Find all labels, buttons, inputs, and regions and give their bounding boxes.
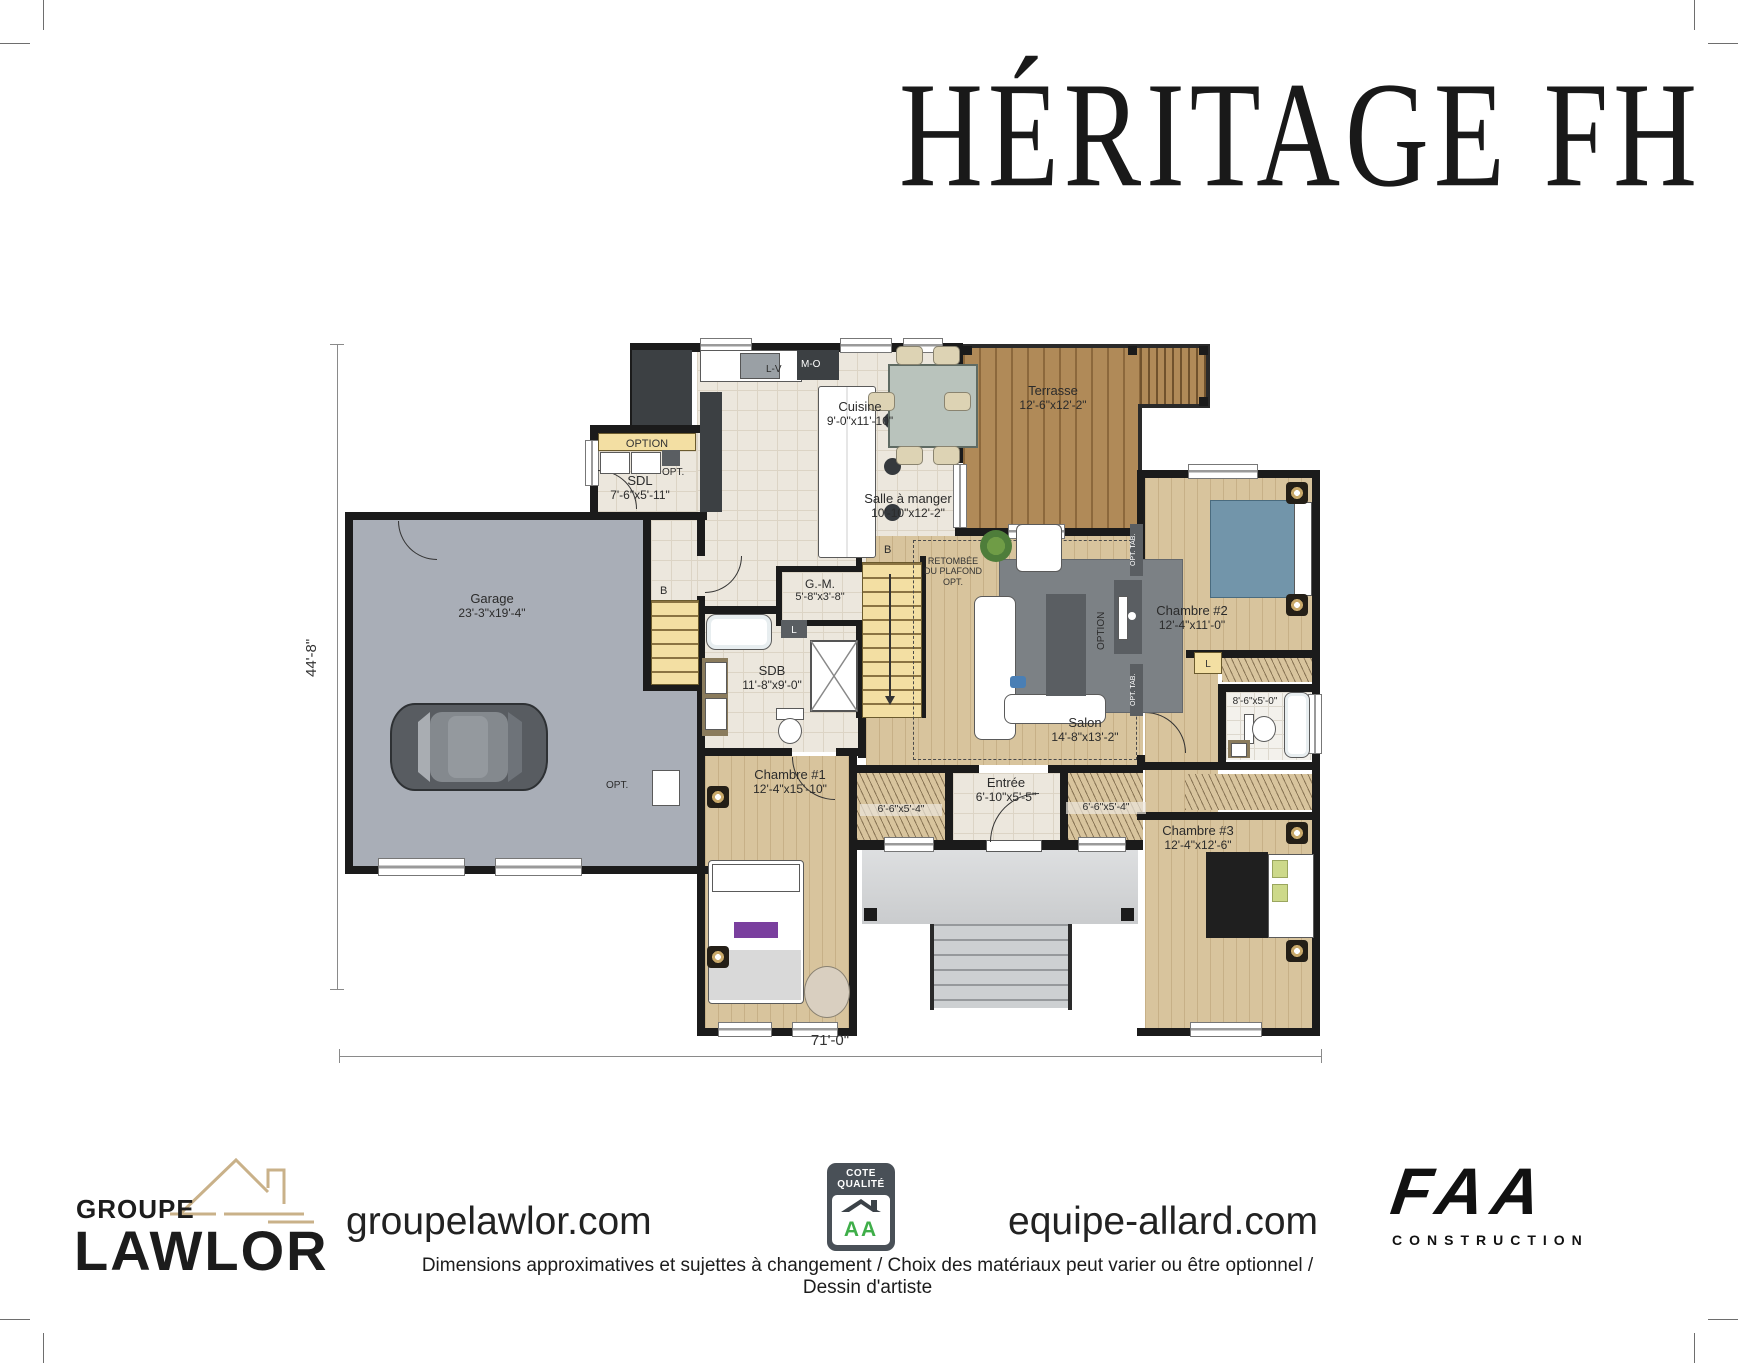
garage-opt-label: OPT. bbox=[606, 780, 628, 791]
step-rail bbox=[930, 924, 934, 1010]
tv bbox=[1118, 596, 1128, 640]
brochure-page: HÉRITAGE FH bbox=[0, 0, 1738, 1363]
wall-sconce bbox=[1286, 594, 1308, 616]
bed-chambre2 bbox=[1210, 500, 1298, 598]
porch-post bbox=[1121, 908, 1134, 921]
dim-tick bbox=[330, 344, 344, 345]
terrasse-stairs bbox=[1140, 346, 1206, 406]
badge-qualite: QUALITÉ bbox=[827, 1179, 895, 1190]
label-closet-right: 6'-6"x5'-4" bbox=[1066, 802, 1146, 814]
wall bbox=[1137, 762, 1315, 770]
window bbox=[718, 1022, 772, 1037]
site-equipe-allard: equipe-allard.com bbox=[1008, 1200, 1318, 1244]
toilet2-bowl bbox=[1252, 716, 1276, 742]
deck-post bbox=[1199, 346, 1208, 355]
window bbox=[1190, 1022, 1262, 1037]
corner-cabinet bbox=[632, 350, 692, 428]
label-chambre1: Chambre #1 12'-4"x15'-10" bbox=[728, 768, 852, 796]
badge-panel: AA bbox=[832, 1195, 890, 1245]
badge-cote: COTE bbox=[827, 1168, 895, 1179]
plan-title: HÉRITAGE FH bbox=[899, 50, 1702, 223]
bed3-pillow bbox=[1272, 884, 1288, 902]
window bbox=[840, 338, 892, 353]
accent-pillow bbox=[1010, 676, 1026, 688]
disclaimer: Dimensions approximatives et sujettes à … bbox=[395, 1255, 1340, 1299]
bathtub2 bbox=[1284, 692, 1310, 758]
crop-mark bbox=[0, 43, 30, 44]
stair-arrow bbox=[889, 574, 891, 698]
cote-qualite-badge: COTE QUALITÉ AA bbox=[827, 1163, 895, 1251]
wall-sconce bbox=[1286, 822, 1308, 844]
faa-logo: FAA CONSTRUCTION bbox=[1392, 1158, 1642, 1278]
label-gm: G.-M. 5'-8"x3'-8" bbox=[772, 578, 868, 604]
wall-sconce bbox=[1286, 940, 1308, 962]
wall-sconce bbox=[707, 946, 729, 968]
stair-landing bbox=[651, 520, 697, 602]
dining-chair bbox=[896, 446, 923, 465]
dim-tick bbox=[1321, 1049, 1322, 1063]
wall bbox=[697, 748, 792, 756]
opt-tab-wall: OPT. TAB. bbox=[1130, 524, 1143, 576]
closet-ch2-floor bbox=[1222, 658, 1312, 682]
crop-mark bbox=[1708, 1319, 1738, 1320]
vanity-sink bbox=[705, 698, 727, 730]
faa-text: FAA bbox=[1387, 1158, 1646, 1224]
bed3-pillow bbox=[1272, 860, 1288, 878]
bathtub bbox=[706, 614, 772, 650]
window bbox=[884, 837, 934, 852]
wall bbox=[1218, 684, 1314, 692]
wall bbox=[697, 512, 705, 556]
badge-roof-icon bbox=[839, 1197, 883, 1213]
terrasse-deck bbox=[963, 346, 1140, 530]
wall bbox=[857, 765, 979, 773]
kitchen-counter bbox=[700, 392, 722, 512]
faa-construction-text: CONSTRUCTION bbox=[1392, 1232, 1642, 1248]
garage-door bbox=[495, 858, 582, 876]
crop-mark bbox=[43, 0, 44, 30]
toilet-bowl bbox=[778, 718, 802, 744]
label-salle-a-manger: Salle à manger 10'-10"x12'-2" bbox=[848, 492, 968, 520]
deck-post bbox=[963, 346, 972, 355]
dim-width-label: 71'-0" bbox=[780, 1032, 880, 1049]
round-chair bbox=[804, 966, 850, 1018]
label-cuisine: Cuisine 9'-0"x11'-10" bbox=[795, 400, 925, 428]
porch-post bbox=[864, 908, 877, 921]
media-console bbox=[1046, 594, 1086, 696]
dim-tick bbox=[330, 989, 344, 990]
dim-height-label: 44'-8" bbox=[303, 618, 320, 698]
dim-tick bbox=[339, 1049, 340, 1063]
sdl-option-band: OPTION bbox=[598, 433, 696, 451]
tv-option-label: OPTION bbox=[1096, 584, 1107, 650]
label-chambre2: Chambre #2 12'-4"x11'-0" bbox=[1130, 604, 1254, 632]
dining-chair bbox=[944, 392, 971, 411]
wall bbox=[345, 512, 353, 874]
wall bbox=[590, 425, 702, 433]
dining-chair bbox=[933, 346, 960, 365]
salon-rug bbox=[1000, 560, 1182, 712]
closet-wing-floor bbox=[1185, 774, 1312, 810]
label-bain2: 8'-6"x5'-0" bbox=[1226, 696, 1284, 707]
bed1-throw bbox=[734, 922, 778, 938]
crop-mark bbox=[0, 1319, 30, 1320]
car bbox=[388, 698, 550, 796]
linen-closet: L bbox=[781, 620, 807, 638]
dining-chair bbox=[933, 446, 960, 465]
linen2-label: L bbox=[1205, 659, 1211, 670]
badge-aa: AA bbox=[832, 1219, 890, 1240]
label-terrasse: Terrasse 12'-6"x12'-2" bbox=[993, 384, 1113, 412]
step-rail bbox=[1068, 924, 1072, 1010]
garage-opt-door bbox=[652, 770, 680, 806]
wall bbox=[1218, 684, 1226, 766]
wall bbox=[345, 512, 707, 520]
label-sdl: SDL 7'-6"x5'-11" bbox=[590, 474, 690, 502]
groupe-lawlor-logo: GROUPE LAWLOR bbox=[72, 1150, 352, 1285]
sdl-opt-appliance bbox=[662, 450, 680, 466]
garage-door bbox=[378, 858, 465, 876]
armchair bbox=[1016, 524, 1062, 572]
deck-post bbox=[1128, 346, 1137, 355]
basement-stairs bbox=[651, 600, 699, 685]
stair-b-label: B bbox=[884, 544, 891, 556]
wall bbox=[849, 755, 857, 1036]
crop-mark bbox=[1694, 1333, 1695, 1363]
label-closet-left: 6'-6"x5'-4" bbox=[860, 804, 942, 816]
label-garage: Garage 23'-3"x19'-4" bbox=[422, 592, 562, 620]
dining-chair bbox=[896, 346, 923, 365]
window bbox=[1078, 837, 1126, 852]
label-entree: Entrée 6'-10"x5'-5" bbox=[948, 776, 1064, 804]
site-groupelawlor: groupelawlor.com bbox=[346, 1200, 652, 1244]
linen-closet2: L bbox=[1194, 652, 1222, 674]
label-salon: Salon 14'-8"x13'-2" bbox=[1030, 716, 1140, 744]
ceiling-drop-label: RETOMBÉE DU PLAFOND OPT. bbox=[908, 556, 998, 587]
window bbox=[1308, 694, 1322, 754]
label-sdb: SDB 11'-8"x9'-0" bbox=[712, 664, 832, 692]
washer bbox=[600, 452, 630, 474]
deck-post bbox=[1199, 397, 1208, 406]
crop-mark bbox=[43, 1333, 44, 1363]
dryer bbox=[631, 452, 661, 474]
dim-line-vertical bbox=[337, 345, 338, 990]
wall-sconce bbox=[1286, 482, 1308, 504]
label-chambre3: Chambre #3 12'-4"x12'-6" bbox=[1136, 824, 1260, 852]
dim-line-horizontal bbox=[340, 1056, 1322, 1057]
stair-arrow-head bbox=[885, 696, 895, 705]
deck-edge bbox=[963, 344, 1210, 348]
bed3-headboard bbox=[1206, 852, 1268, 938]
wall bbox=[697, 606, 781, 614]
sdl-option-label: OPTION bbox=[626, 438, 668, 450]
dishwasher-label: L-V bbox=[766, 364, 782, 375]
plant bbox=[980, 530, 1012, 562]
wall bbox=[1137, 812, 1315, 820]
linen-label: L bbox=[791, 625, 797, 636]
stair-b-label: B bbox=[660, 585, 667, 597]
window bbox=[1188, 464, 1258, 479]
wall-sconce bbox=[707, 786, 729, 808]
crop-mark bbox=[1708, 43, 1738, 44]
vanity2-sink bbox=[1231, 743, 1247, 757]
lawlor-main-text: LAWLOR bbox=[74, 1218, 329, 1283]
crop-mark bbox=[1694, 0, 1695, 30]
wall bbox=[643, 512, 651, 691]
microwave-label: M-O bbox=[801, 359, 820, 370]
porch bbox=[862, 850, 1138, 924]
bed-pillows bbox=[1294, 502, 1312, 596]
front-steps bbox=[932, 924, 1072, 1008]
opt-tab-wall: OPT. TAB. bbox=[1130, 664, 1143, 716]
garage-floor bbox=[353, 520, 643, 866]
bed1-pillows bbox=[712, 864, 800, 892]
